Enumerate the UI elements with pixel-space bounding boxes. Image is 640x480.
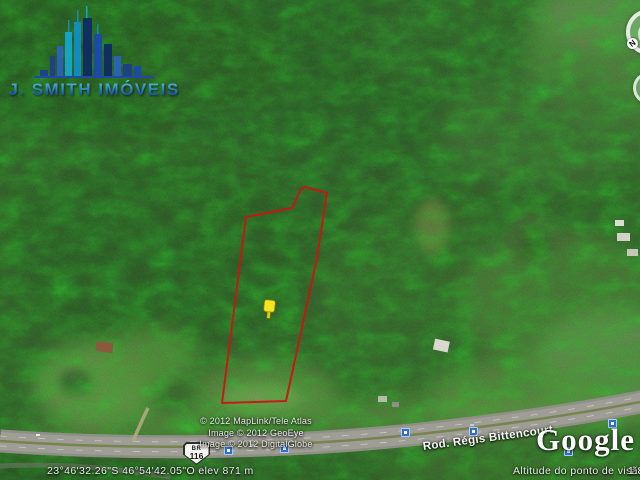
status-altitude-label: Altitude do ponto de visão	[513, 465, 640, 477]
pushpin-icon[interactable]	[258, 297, 284, 327]
google-earth-logo: Google ea	[536, 422, 640, 458]
logo-skyline-icon	[6, 6, 182, 82]
attribution-line: Image © 2012 GeoEye	[168, 428, 344, 440]
attribution-line: © 2012 MapLink/Tele Atlas	[168, 416, 344, 428]
watermark-brand-text: J. SMITH IMÓVEIS	[6, 80, 182, 100]
status-coordinates: 23°46'32.26"S 46°54'42.05"O elev 871 m	[47, 465, 254, 477]
status-altitude-value: 1.8	[628, 465, 640, 477]
imagery-attribution: © 2012 MapLink/Tele Atlas Image © 2012 G…	[168, 416, 344, 451]
photo-icon[interactable]	[401, 428, 410, 437]
attribution-line: Image © 2012 DigitalGlobe	[168, 439, 344, 451]
google-earth-window: { "watermark": { "brand_line": "J. SMITH…	[0, 0, 640, 480]
watermark-logo: J. SMITH IMÓVEIS	[6, 6, 182, 108]
